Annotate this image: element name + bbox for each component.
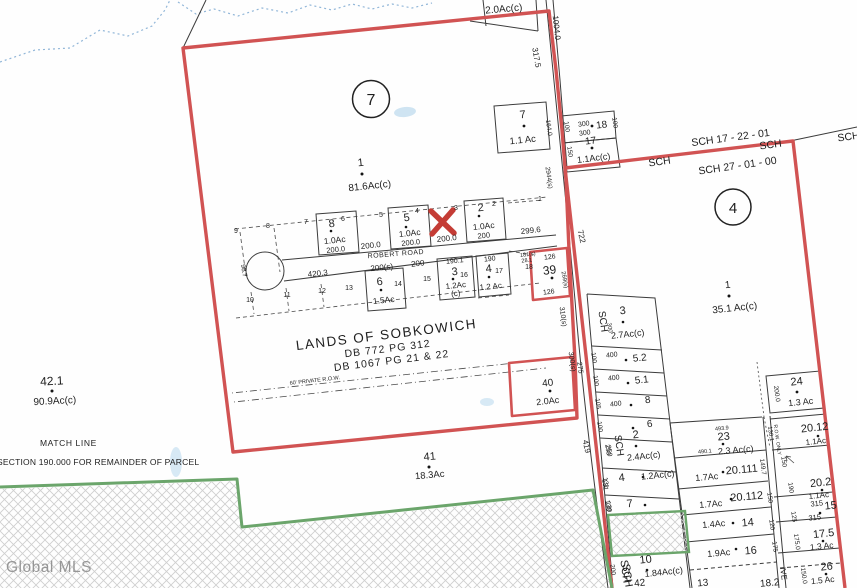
parcel18t-number: 18 xyxy=(596,119,609,131)
tick-18: 18 xyxy=(525,264,533,271)
lot2-dim: 200 xyxy=(477,230,490,240)
lot4-number: 4 xyxy=(485,263,492,276)
district-sch-edge: SCH xyxy=(837,130,857,145)
p23-number: 23 xyxy=(717,431,730,444)
tick-12: 12 xyxy=(318,288,326,295)
drive-name-fragment: IVE xyxy=(778,567,789,581)
tick-9: 9 xyxy=(234,228,238,235)
ecol51-width: 400 xyxy=(608,374,620,382)
tick-14: 14 xyxy=(394,281,402,288)
tick-2: 2 xyxy=(492,201,496,208)
p16-acreage: 1.9Ac xyxy=(707,547,731,559)
parcel7t-number: 7 xyxy=(519,109,526,122)
tick-5: 5 xyxy=(379,212,383,219)
tick-6: 6 xyxy=(341,216,345,223)
tick-11: 11 xyxy=(283,292,290,299)
parcel39-dim-bottom: 126 xyxy=(543,288,556,296)
ecol7-number: 7 xyxy=(626,498,633,511)
ecol52-number: 5.2 xyxy=(632,352,647,364)
p23-dim-left: 490.1 xyxy=(698,448,712,455)
lot3-acreage2: (c) xyxy=(451,289,462,299)
section-number-left: 7 xyxy=(367,92,376,109)
ecol10-number: 10 xyxy=(639,553,652,566)
p24-number: 24 xyxy=(790,375,803,388)
lot8-number: 8 xyxy=(328,218,335,231)
section-note: SECTION 190.000 FOR REMAINDER OF PARCEL xyxy=(0,457,199,467)
p14-acreage: 1.4Ac xyxy=(702,518,726,530)
below-dim-200: 200 xyxy=(411,258,426,268)
global-mls-watermark: Global MLS xyxy=(6,559,92,576)
green-hatch-block xyxy=(608,511,689,556)
parcel17t-number: 17 xyxy=(585,135,598,147)
parcel42-1-number: 42.1 xyxy=(40,373,64,388)
ecol51-number: 5.1 xyxy=(634,374,649,386)
p202-number: 20.2 xyxy=(809,476,832,490)
tick-7: 7 xyxy=(304,219,308,226)
p20112-acreage: 1.7Ac xyxy=(699,498,723,510)
p26-number: 26 xyxy=(820,560,833,573)
tick-15: 15 xyxy=(423,276,431,283)
lot5-number: 5 xyxy=(403,212,410,225)
parcel39-number: 39 xyxy=(542,262,557,278)
tick-3: 3 xyxy=(454,205,458,212)
p15-number: 15 xyxy=(824,499,837,512)
ecol10-frag: 42 xyxy=(634,577,647,588)
mid-frag-13: 13 xyxy=(697,578,709,588)
tick-4: 4 xyxy=(415,208,419,215)
parcel18t-dim-top: 300 xyxy=(578,120,591,128)
tick-17: 17 xyxy=(495,268,503,275)
tick-13: 13 xyxy=(345,285,353,292)
mid-frag-182: 18.2 xyxy=(760,577,781,588)
p15-dim-top: 315 xyxy=(810,498,823,508)
section-number-right: 4 xyxy=(729,200,737,217)
ecol3-number: 3 xyxy=(619,305,626,318)
p20111-acreage: 1.7Ac xyxy=(695,471,719,483)
pond xyxy=(480,398,494,406)
parcel39-dim-top: 126 xyxy=(544,253,557,261)
p16-number: 16 xyxy=(744,545,757,558)
ecol2-number: 2 xyxy=(632,429,639,442)
lot3-number: 3 xyxy=(451,266,458,279)
tick-16: 16 xyxy=(460,272,468,279)
ecol52-width: 400 xyxy=(606,351,618,359)
tax-map: 7 4 1 81.6Ac(c) 1 35.1 Ac(c) 42.1 90.9Ac… xyxy=(0,0,857,588)
ecol4-number: 4 xyxy=(618,472,625,485)
tick-10: 10 xyxy=(246,297,254,304)
tick-8: 8 xyxy=(266,223,270,230)
parcel42-1-acreage: 90.9Ac(c) xyxy=(33,395,76,408)
ecol8-width: 400 xyxy=(610,400,622,408)
p14-number: 14 xyxy=(741,517,754,530)
lot2-number: 2 xyxy=(477,202,484,215)
lot6-number: 6 xyxy=(376,276,383,289)
tick-1: 1 xyxy=(538,196,542,203)
p15-dim-bottom: 315 xyxy=(808,512,821,522)
match-line-label: MATCH LINE xyxy=(40,438,97,448)
parcel1w-number: 1 xyxy=(357,157,364,170)
parcel41-number: 41 xyxy=(423,451,436,464)
parcel40-number: 40 xyxy=(542,377,555,389)
